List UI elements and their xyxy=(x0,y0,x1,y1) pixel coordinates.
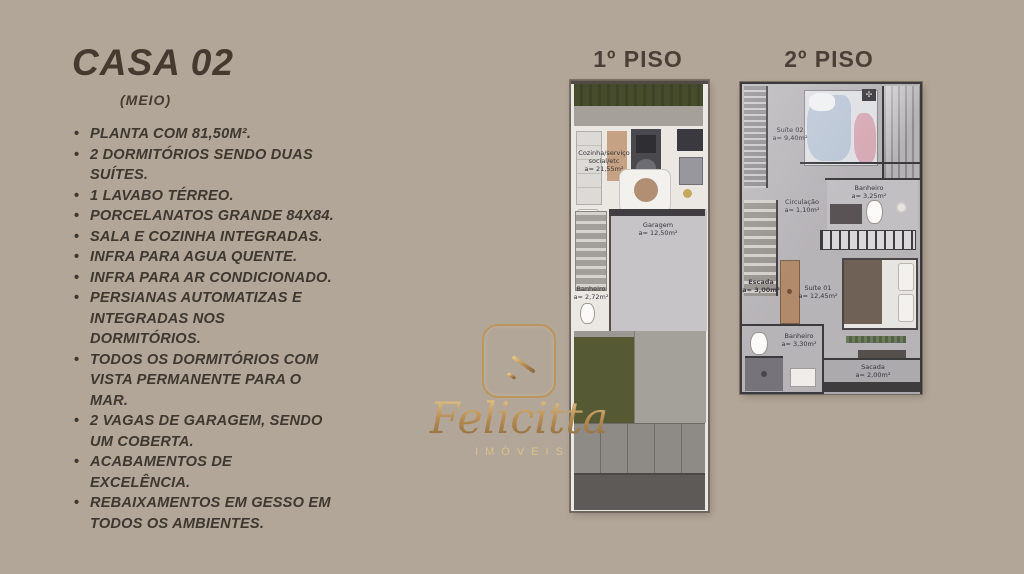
feature-item: PLANTA COM 81,50M². xyxy=(72,124,334,145)
floor1-heading: 1º PISO xyxy=(558,46,718,73)
brand-wordmark: Felicitta xyxy=(428,398,610,441)
room-label-circulation: Circulação a= 1,10m² xyxy=(778,198,826,214)
room-label-suite1: Suíte 01 a= 12,45m² xyxy=(790,284,846,300)
garage-door xyxy=(609,209,705,216)
feature-item: PERSIANAS AUTOMATIZAS E INTEGRADAS NOS D… xyxy=(72,288,334,350)
bed-suite-01 xyxy=(842,258,918,330)
feature-item: INFRA PARA AR CONDICIONADO. xyxy=(72,268,334,289)
pillow xyxy=(809,93,835,111)
wall xyxy=(742,324,824,326)
pillow xyxy=(898,294,914,322)
toilet-icon xyxy=(866,200,883,224)
floorplan-second-floor: ✣ Suíte 02 a= 9,40m² Banheiro a= 3,25m² … xyxy=(740,82,922,394)
page-title: CASA 02 xyxy=(72,42,402,84)
bed-bench xyxy=(858,350,906,358)
street-strip xyxy=(574,473,705,510)
toilet-icon xyxy=(580,303,595,324)
staircase xyxy=(575,211,607,291)
wardrobe-hatching xyxy=(820,230,916,250)
room-label-bath-lower: Banheiro a= 3,30m² xyxy=(776,332,822,348)
feature-list: PLANTA COM 81,50M². 2 DORMITÓRIOS SENDO … xyxy=(72,124,334,534)
vanity xyxy=(830,204,862,224)
blanket xyxy=(844,260,882,324)
entry-walkway xyxy=(574,106,703,126)
ceiling-fan-icon: ✣ xyxy=(862,89,876,101)
stove xyxy=(677,129,703,151)
shower-box xyxy=(745,356,783,391)
balcony-slats xyxy=(882,86,920,178)
room-label-bath-upper: Banheiro a= 3,25m² xyxy=(838,184,900,200)
room-label-suite2: Suíte 02 a= 9,40m² xyxy=(764,126,816,142)
pink-throw xyxy=(854,113,876,163)
kitchen-sink xyxy=(679,157,703,185)
vanity xyxy=(790,368,816,387)
feature-item: 2 VAGAS DE GARAGEM, SENDO UM COBERTA. xyxy=(72,411,334,452)
room-label-lavabo: Banheiro a= 2,72m² xyxy=(573,285,609,301)
concrete-patio xyxy=(634,331,706,423)
wall xyxy=(800,162,920,164)
brand-tagline: IMÓVEIS xyxy=(428,446,610,458)
bench-rug xyxy=(846,336,906,343)
balcony-edge xyxy=(824,382,920,392)
brand-logo: Felicitta IMÓVEIS xyxy=(428,324,610,458)
feature-item: PORCELANATOS GRANDE 84X84. xyxy=(72,206,334,227)
feature-item: ACABAMENTOS DE EXCELÊNCIA. xyxy=(72,452,334,493)
room-label-living: Cozinha/serviço social/etc a= 21,55m² xyxy=(575,149,633,173)
listing-subtitle: (MEIO) xyxy=(120,92,402,108)
real-estate-flyer: CASA 02 (MEIO) PLANTA COM 81,50M². 2 DOR… xyxy=(0,0,1024,574)
feature-item: SALA E COZINHA INTEGRADAS. xyxy=(72,227,334,248)
room-label-stairs: Escada a= 3,00m² xyxy=(742,278,780,294)
feature-item: TODOS OS DORMITÓRIOS COM VISTA PERMANENT… xyxy=(72,350,334,412)
lamp-icon xyxy=(898,204,905,211)
felicitta-monogram-icon xyxy=(482,324,556,398)
monogram-f-icon xyxy=(494,336,544,386)
listing-info: CASA 02 (MEIO) PLANTA COM 81,50M². 2 DOR… xyxy=(72,42,402,534)
feature-item: 1 LAVABO TÉRREO. xyxy=(72,186,334,207)
hedge-strip xyxy=(574,84,703,106)
decor-dot xyxy=(683,189,692,198)
room-label-garage: Garagem a= 12,50m² xyxy=(623,221,693,237)
drain-icon xyxy=(761,371,767,377)
pillow xyxy=(898,263,914,291)
feature-item: 2 DORMITÓRIOS SENDO DUAS SUÍTES. xyxy=(72,145,334,186)
feature-item: REBAIXAMENTOS EM GESSO EM TODOS OS AMBIE… xyxy=(72,493,334,534)
room-label-balcony: Sacada a= 2,00m² xyxy=(844,363,902,379)
toilet-icon xyxy=(750,332,768,355)
floor2-heading: 2º PISO xyxy=(749,46,909,73)
dining-table xyxy=(619,169,671,213)
feature-item: INFRA PARA AGUA QUENTE. xyxy=(72,247,334,268)
